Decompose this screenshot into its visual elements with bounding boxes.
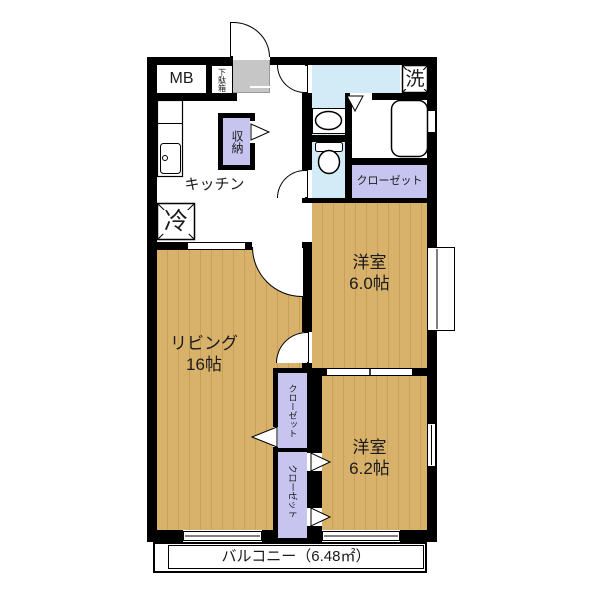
toilet-bowl-icon: [319, 151, 340, 174]
living-label: リビング 16帖: [158, 333, 250, 375]
bedroom2-name: 洋室: [322, 437, 417, 458]
bathtub-icon: [392, 101, 428, 157]
mb-label: MB: [157, 65, 206, 93]
closet-lower-folding-door: [311, 508, 330, 526]
washer-text: 洗: [404, 70, 425, 89]
bedroom1-name: 洋室: [322, 252, 417, 273]
shoe-box-label: 下駄箱: [212, 66, 232, 93]
storage-label: 収納: [223, 118, 250, 165]
closet-lower-label: クローゼット: [278, 452, 307, 530]
fridge-label: 冷: [157, 203, 195, 240]
living-size: 16帖: [158, 354, 250, 375]
closet-upper-label: クローゼット: [278, 373, 307, 448]
bedroom1-label: 洋室 6.0帖: [322, 252, 417, 294]
bathroom-folding-door: [347, 96, 363, 111]
bedroom2-label: 洋室 6.2帖: [322, 437, 417, 479]
bedroom1-size: 6.0帖: [322, 273, 417, 294]
washer-label: 洗: [402, 65, 428, 93]
living-name: リビング: [158, 333, 250, 354]
vanity-basin-icon: [316, 112, 342, 130]
fridge-text: 冷: [163, 210, 189, 234]
kitchen-faucet-icon: [163, 156, 168, 161]
kitchen-label: キッチン: [167, 177, 262, 193]
floor-plan: MB 下駄箱 洗 収納 キッチン 冷 クローゼット 洋室 6.0帖 リビング 1…: [0, 0, 600, 600]
bedroom2-size: 6.2帖: [322, 458, 417, 479]
storage-folding-door: [251, 124, 269, 140]
storage-text: 収納: [230, 130, 243, 154]
closet-upper-folding-door: [252, 427, 277, 447]
bedroom1-closet-label: クローゼット: [352, 166, 427, 197]
shoe-box-text: 下駄箱: [218, 68, 227, 92]
balcony-label: バルコニー（6.48㎡）: [168, 545, 424, 569]
closet-lower-text: クローゼット: [286, 464, 299, 518]
closet-upper-text: クローゼット: [288, 384, 298, 438]
